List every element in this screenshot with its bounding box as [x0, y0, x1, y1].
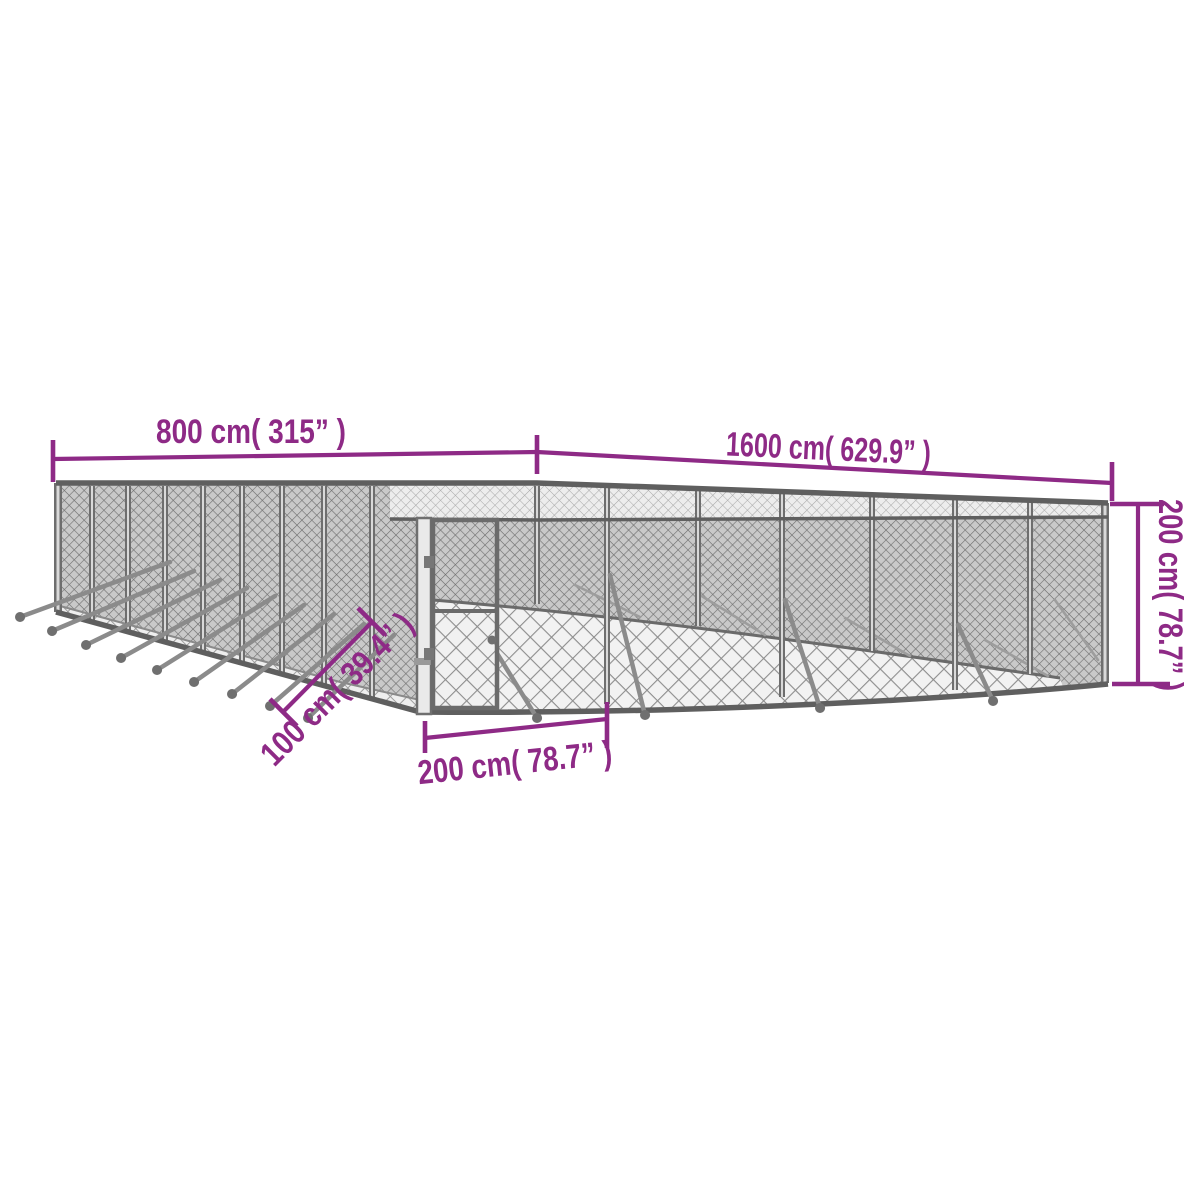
- hinge-post: [417, 518, 431, 714]
- dimension-door-width: 200 cm( 78.7” ): [416, 702, 614, 792]
- dimension-height: 200 cm( 78.7” ): [1110, 499, 1189, 691]
- door-hinge-top: [424, 556, 434, 568]
- door-latch: [488, 636, 497, 645]
- kennel-structure: [20, 483, 1108, 718]
- door-hinge-bottom: [424, 648, 434, 660]
- dimension-width-line: [53, 452, 537, 459]
- product-dimension-diagram: 800 cm( 315” ) 1600 cm( 629.9” ) 200 cm(…: [0, 0, 1200, 1200]
- door-lower-mesh: [435, 611, 495, 706]
- dimension-height-label: 200 cm( 78.7” ): [1151, 499, 1189, 691]
- dimension-door-width-label: 200 cm( 78.7” ): [416, 734, 614, 792]
- dimension-door-width-line: [425, 719, 607, 738]
- dimension-width: 800 cm( 315” ): [53, 413, 537, 482]
- dimension-width-label: 800 cm( 315” ): [156, 413, 346, 451]
- kennel-diagram-svg: 800 cm( 315” ) 1600 cm( 629.9” ) 200 cm(…: [0, 0, 1200, 1200]
